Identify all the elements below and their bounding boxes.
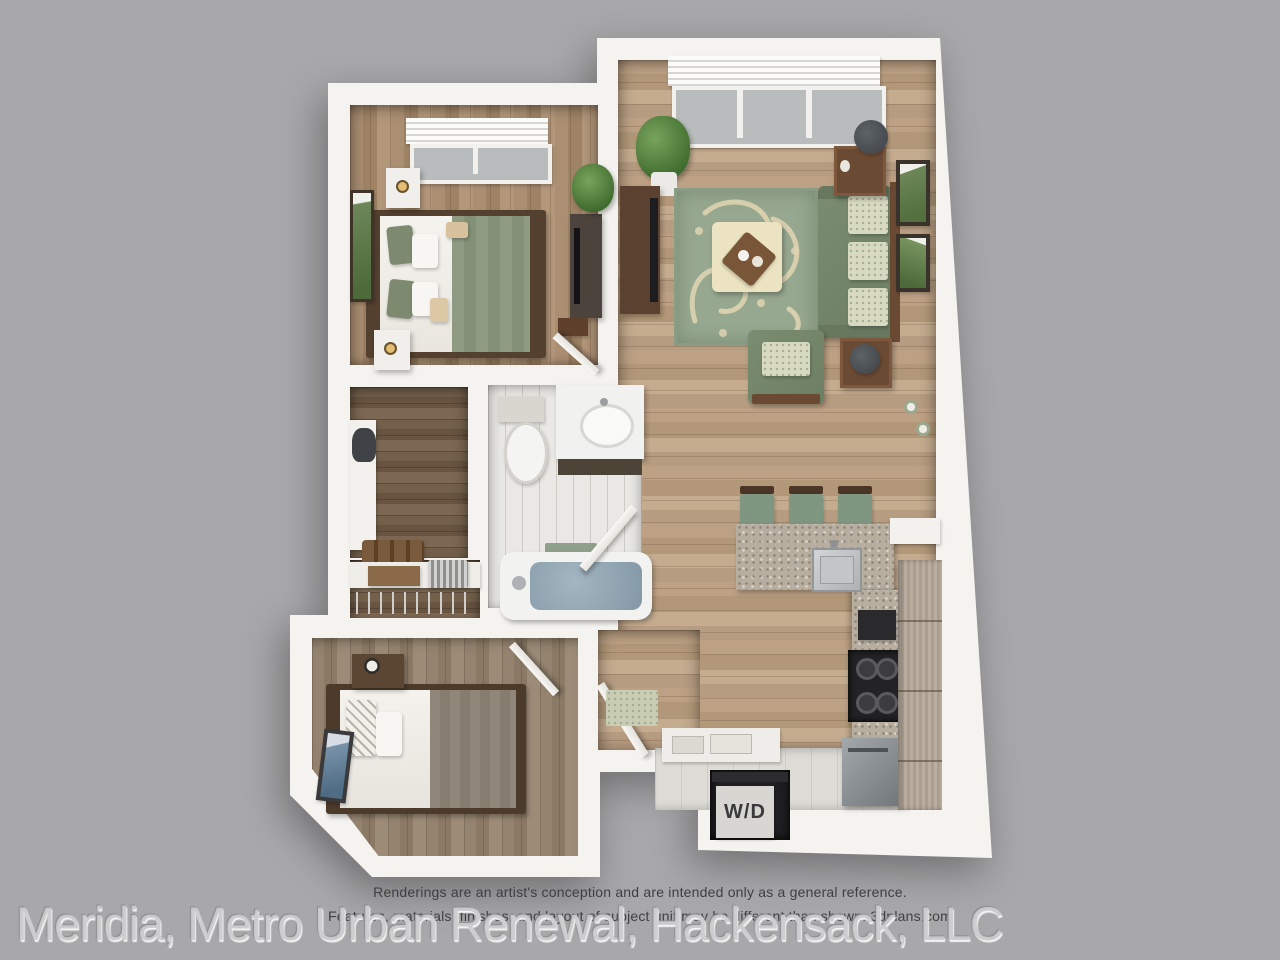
storage-bag xyxy=(352,428,376,462)
bedroom1-window xyxy=(410,144,552,184)
nightstand-lamp xyxy=(364,658,380,674)
bar-stool-back xyxy=(838,486,872,494)
cabinet-seam xyxy=(898,620,942,622)
accent-pillow-tan xyxy=(446,222,468,238)
washer-dryer-unit: W/D xyxy=(716,786,774,838)
wall-flower-decor xyxy=(904,400,918,414)
nightstand-lamp xyxy=(396,180,409,193)
wall-art-image xyxy=(900,238,926,288)
storage-tray xyxy=(672,736,704,754)
sofa-armrest xyxy=(818,325,892,338)
wall-shelf xyxy=(890,518,940,544)
sofa-cushion xyxy=(848,288,888,326)
bar-stool-back xyxy=(740,486,774,494)
bar-stool xyxy=(789,494,823,528)
wall-art-bedroom1 xyxy=(350,190,374,302)
bedroom1-window-mullion xyxy=(473,146,478,174)
microwave xyxy=(858,610,896,640)
cup xyxy=(738,250,749,261)
bar-stool xyxy=(740,494,774,528)
fridge-handle xyxy=(848,748,888,752)
decor-vase xyxy=(840,160,850,172)
kitchen-sink xyxy=(812,548,862,592)
vanity-faucet xyxy=(600,398,608,406)
bar-stool xyxy=(838,494,872,528)
wall-art-image xyxy=(353,193,371,299)
tv-bedroom1 xyxy=(574,228,580,304)
vanity-cabinet xyxy=(558,459,642,475)
pillow-white xyxy=(412,234,438,268)
tv-screen xyxy=(650,198,658,302)
accent-pillow-tan xyxy=(430,298,448,322)
sofa-cushion xyxy=(848,242,888,280)
burner xyxy=(856,658,878,680)
watermark-text: Meridia, Metro Urban Renewal, Hackensack… xyxy=(16,896,1003,951)
refrigerator xyxy=(842,738,906,806)
bar-stool-back xyxy=(789,486,823,494)
burner xyxy=(876,692,898,714)
wall-art-image xyxy=(900,164,926,222)
laundry-machine-top xyxy=(712,772,788,782)
pillow-white xyxy=(376,712,402,756)
wall-flower-decor xyxy=(916,422,930,436)
storage-tray xyxy=(710,734,752,754)
wood-box xyxy=(368,566,420,586)
nightstand-lamp xyxy=(384,342,397,355)
burner xyxy=(856,692,878,714)
kitchen-faucet xyxy=(830,540,838,548)
entry-door-mat xyxy=(606,690,658,726)
sink-basin xyxy=(820,556,854,584)
taupe-blanket xyxy=(430,690,516,808)
metal-basket xyxy=(428,560,468,588)
wall-art-living xyxy=(896,234,930,292)
cabinet-seam xyxy=(898,760,942,762)
burner xyxy=(876,658,898,680)
bathtub xyxy=(500,552,652,620)
living-window-mullion xyxy=(806,88,812,138)
potted-plant-living xyxy=(636,116,690,180)
living-window-mullion xyxy=(737,88,743,138)
cup xyxy=(752,256,763,267)
washer-dryer-label: W/D xyxy=(716,786,774,838)
cabinet-seam xyxy=(898,690,942,692)
table-lamp-north xyxy=(854,120,888,154)
toilet xyxy=(504,422,548,484)
bench-bedroom1 xyxy=(558,318,588,336)
potted-plant-bedroom1 xyxy=(572,164,614,212)
wall-art-image xyxy=(320,733,350,799)
tall-cabinets xyxy=(898,560,942,810)
armchair-wood-base xyxy=(752,394,820,404)
clothes-hangers xyxy=(356,592,476,614)
armchair-cushion xyxy=(762,342,810,376)
tub-faucet xyxy=(512,576,526,590)
wall-art-living xyxy=(896,160,930,226)
toilet-tank xyxy=(498,396,544,422)
table-lamp-south xyxy=(850,344,880,374)
floor-plan-rendering: W/D Renderings are an artist's conceptio… xyxy=(0,0,1280,960)
vanity-sink xyxy=(580,404,634,448)
living-window-blinds xyxy=(668,56,880,86)
sofa-cushion xyxy=(848,196,888,234)
entry-closet-shelf xyxy=(662,728,780,762)
bedroom1-window-blinds xyxy=(406,118,548,144)
